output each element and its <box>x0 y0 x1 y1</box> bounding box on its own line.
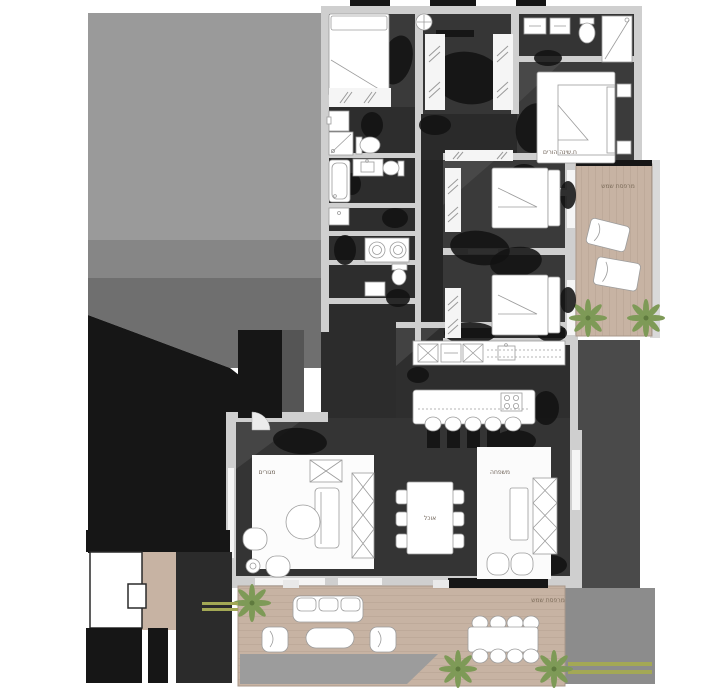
bed-small <box>329 14 389 96</box>
wardrobe-hatched <box>445 168 461 232</box>
vanity-sink <box>353 159 383 176</box>
chair <box>511 553 533 575</box>
media-console <box>352 473 374 558</box>
bed-b <box>492 275 560 335</box>
bed-a <box>492 168 560 228</box>
sink <box>329 111 349 131</box>
nightstand <box>617 84 631 97</box>
door-step <box>283 580 299 588</box>
side-table <box>246 559 260 573</box>
balcony-south-label: מרפסת שמש <box>531 597 565 604</box>
hedge-strip <box>202 608 238 611</box>
floor-plan-canvas: ח.שינה הורים מרפסת שמש מגורים משפחה אוכל… <box>0 0 726 700</box>
hedge-strip <box>202 602 238 605</box>
outdoor-dining-table <box>468 627 538 652</box>
palm-plant <box>627 299 665 337</box>
nightstand <box>617 141 631 154</box>
balcony-south <box>233 578 573 688</box>
neighbor-block-band <box>88 240 321 278</box>
living-room-label: מגורים <box>259 469 276 476</box>
chair <box>487 553 509 575</box>
toilet <box>356 137 380 154</box>
family-room-label: משפחה <box>490 469 510 476</box>
neighbor-block-bottom-right <box>565 588 655 684</box>
dining-label: אוכל <box>424 515 436 522</box>
neighbor-block-top-left <box>88 13 321 240</box>
sink <box>329 208 349 225</box>
palm-plant <box>439 650 477 688</box>
wardrobe-hatched <box>329 88 391 107</box>
balcony-east-label: מרפסת שמש <box>601 183 635 190</box>
coffee-table-round <box>286 505 320 539</box>
outdoor-armchair <box>370 627 396 652</box>
hedge-strip <box>568 662 652 666</box>
washer-dryer <box>365 238 409 262</box>
sink <box>365 282 385 296</box>
shaft-column <box>238 330 282 418</box>
floor-plan-page: ח.שינה הורים מרפסת שמש מגורים משפחה אוכל… <box>0 0 726 700</box>
building-core <box>86 530 238 683</box>
palm-plant <box>535 650 573 688</box>
door-step <box>433 580 449 588</box>
toilet <box>579 18 595 43</box>
tv-table <box>310 460 342 482</box>
toilet <box>392 264 407 285</box>
hedge-strip <box>568 670 652 674</box>
ceiling-lamp <box>416 14 432 30</box>
bathtub <box>329 160 350 202</box>
outdoor-coffee-table <box>306 628 354 648</box>
family-console <box>533 478 557 554</box>
master-bedroom-label: ח.שינה הורים <box>543 149 577 156</box>
armchair <box>266 556 290 577</box>
outdoor-chair <box>490 649 506 663</box>
outdoor-armchair <box>262 627 288 652</box>
floor-corridor <box>419 160 443 345</box>
outdoor-chair <box>472 649 488 663</box>
palm-plant <box>233 584 271 622</box>
exterior-shadow-east <box>578 340 640 588</box>
shower <box>329 132 353 155</box>
kitchen-counter <box>413 341 565 365</box>
wardrobe-hatched <box>445 288 461 338</box>
outdoor-chair <box>523 649 539 663</box>
family-table <box>510 488 528 540</box>
outdoor-chair <box>507 649 523 663</box>
toilet <box>383 161 404 176</box>
entry-niche-gray <box>282 330 304 418</box>
armchair <box>243 528 267 550</box>
deck-shadow-wedge <box>240 654 438 684</box>
shower <box>602 16 632 62</box>
